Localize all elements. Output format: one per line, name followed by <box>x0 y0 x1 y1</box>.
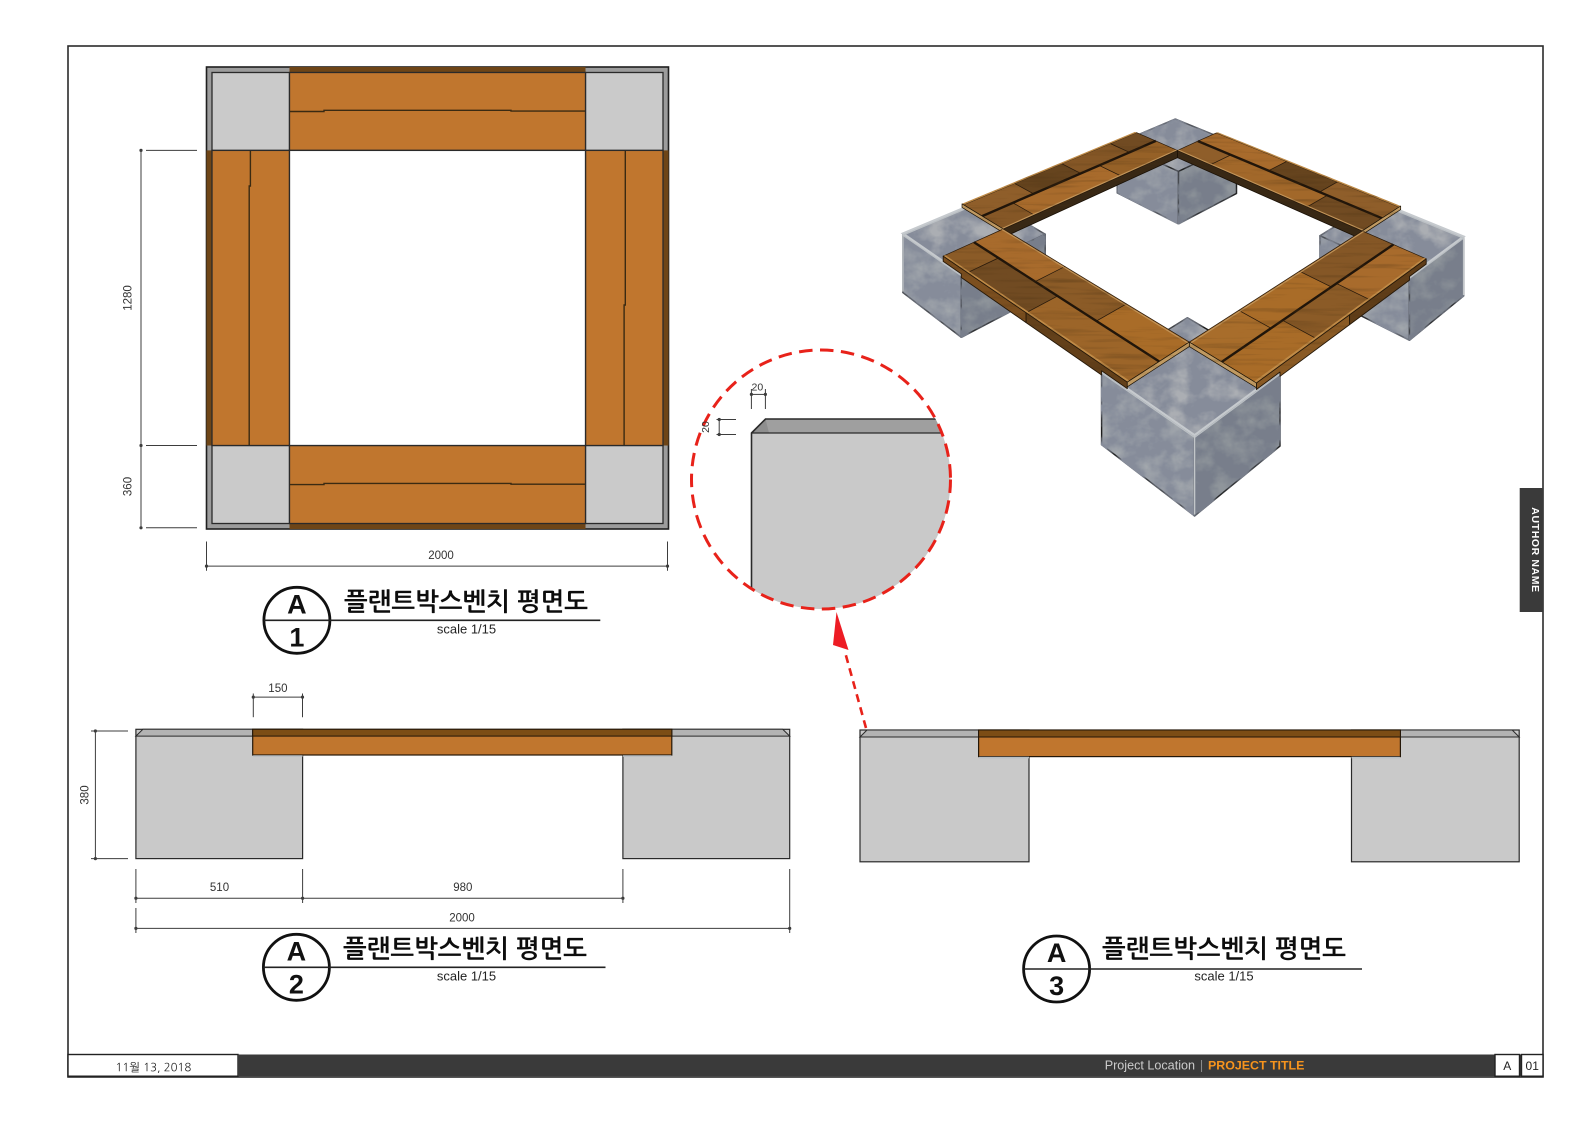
svg-text:scale 1/15: scale 1/15 <box>1194 969 1253 984</box>
svg-text:20: 20 <box>752 382 764 394</box>
svg-text:scale 1/15: scale 1/15 <box>437 969 496 984</box>
svg-text:20: 20 <box>700 421 712 433</box>
svg-text:380: 380 <box>79 785 91 804</box>
svg-text:150: 150 <box>268 683 287 695</box>
svg-text:PROJECT TITLE: PROJECT TITLE <box>1208 1059 1304 1073</box>
svg-text:510: 510 <box>210 882 229 894</box>
svg-text:3: 3 <box>1049 971 1064 1001</box>
svg-text:980: 980 <box>453 882 472 894</box>
svg-text:Project Location: Project Location <box>1105 1059 1195 1073</box>
svg-text:2000: 2000 <box>428 550 454 562</box>
svg-text:2000: 2000 <box>449 913 475 925</box>
svg-text:AUTHOR NAME: AUTHOR NAME <box>1529 507 1541 592</box>
svg-text:360: 360 <box>123 477 135 496</box>
svg-text:A: A <box>287 936 307 966</box>
svg-text:A: A <box>287 589 307 619</box>
svg-text:1280: 1280 <box>123 285 135 311</box>
svg-text:|: | <box>1200 1059 1203 1073</box>
svg-text:scale 1/15: scale 1/15 <box>437 622 496 637</box>
svg-text:2: 2 <box>289 969 304 999</box>
svg-text:A: A <box>1503 1059 1511 1073</box>
svg-text:A: A <box>1047 938 1067 968</box>
svg-text:01: 01 <box>1526 1059 1540 1073</box>
svg-text:1: 1 <box>289 622 304 652</box>
